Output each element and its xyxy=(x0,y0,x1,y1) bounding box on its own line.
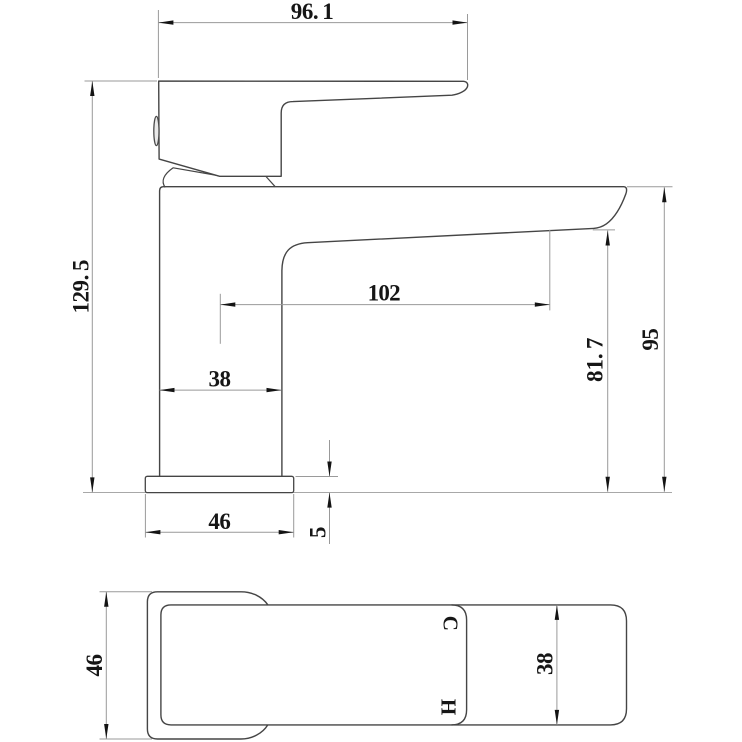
svg-text:H: H xyxy=(437,699,461,715)
svg-text:5: 5 xyxy=(306,527,331,539)
svg-text:102: 102 xyxy=(368,281,401,306)
svg-text:C: C xyxy=(438,616,462,631)
svg-text:129. 5: 129. 5 xyxy=(68,260,93,314)
svg-text:38: 38 xyxy=(208,367,231,392)
svg-text:81. 7: 81. 7 xyxy=(582,337,607,382)
svg-text:46: 46 xyxy=(208,509,231,534)
svg-text:96. 1: 96. 1 xyxy=(291,0,334,24)
svg-text:38: 38 xyxy=(533,652,558,675)
svg-text:46: 46 xyxy=(82,654,107,677)
svg-text:95: 95 xyxy=(638,328,663,351)
